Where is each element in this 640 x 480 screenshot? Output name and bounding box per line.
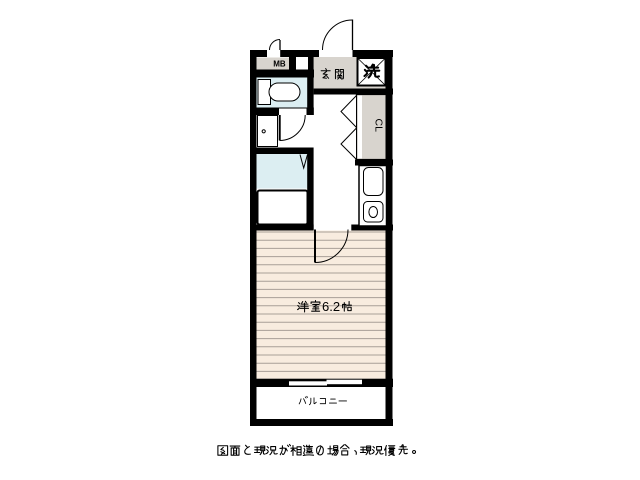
svg-text:CL: CL: [373, 119, 385, 133]
svg-text:MB: MB: [273, 60, 286, 69]
svg-text:6.2: 6.2: [322, 299, 340, 314]
